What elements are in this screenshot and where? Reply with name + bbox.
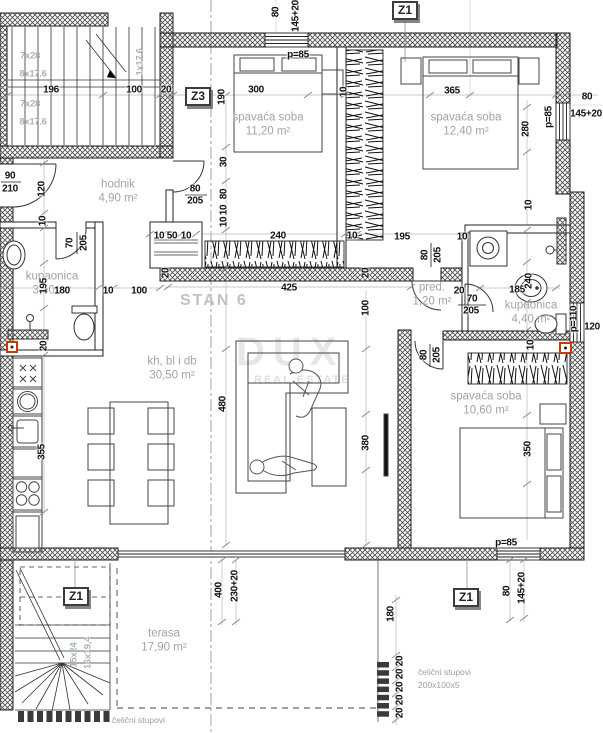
exterior-stair	[15, 563, 110, 710]
staircase-interior	[8, 34, 160, 87]
floor-plan-canvas: DUX REAL ESTATE	[0, 0, 603, 733]
dimension-lines	[2, 95, 598, 725]
terrace-boundary	[117, 568, 376, 708]
furniture	[9, 55, 567, 552]
plan-geometry	[0, 0, 603, 733]
